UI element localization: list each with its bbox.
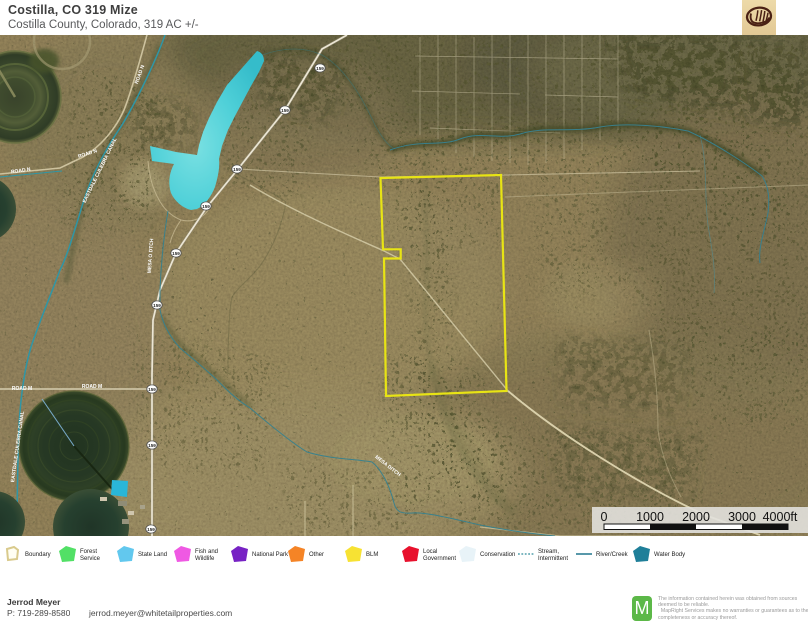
svg-text:River/Creek: River/Creek	[596, 552, 629, 558]
svg-text:4000ft: 4000ft	[763, 510, 798, 524]
svg-text:159: 159	[148, 443, 156, 448]
svg-text:3000: 3000	[728, 510, 756, 524]
svg-text:159: 159	[233, 167, 241, 172]
svg-text:Other: Other	[309, 552, 324, 558]
svg-text:159: 159	[316, 66, 324, 71]
svg-text:Service: Service	[80, 556, 101, 562]
svg-text:159: 159	[148, 387, 156, 392]
svg-text:National Park: National Park	[252, 552, 289, 558]
svg-text:0: 0	[601, 510, 608, 524]
svg-text:Forest: Forest	[80, 549, 97, 555]
svg-text:159: 159	[202, 204, 210, 209]
svg-text:159: 159	[147, 527, 155, 532]
svg-text:Boundary: Boundary	[25, 552, 51, 558]
svg-text:Fish and: Fish and	[195, 549, 218, 555]
svg-text:1000: 1000	[636, 510, 664, 524]
svg-text:Water Body: Water Body	[654, 552, 685, 558]
svg-text:Government: Government	[423, 556, 456, 562]
svg-text:159: 159	[153, 303, 161, 308]
svg-text:Wildlife: Wildlife	[195, 556, 215, 562]
svg-text:ROAD M: ROAD M	[12, 386, 32, 392]
svg-text:2000: 2000	[682, 510, 710, 524]
svg-text:Stream,: Stream,	[538, 549, 559, 555]
svg-text:Intermittent: Intermittent	[538, 556, 568, 562]
svg-text:ROAD M: ROAD M	[82, 384, 102, 390]
svg-text:State Land: State Land	[138, 552, 167, 558]
svg-text:159: 159	[172, 251, 180, 256]
svg-text:Local: Local	[423, 549, 437, 555]
svg-text:Conservation: Conservation	[480, 552, 515, 558]
svg-text:BLM: BLM	[366, 552, 378, 558]
svg-text:159: 159	[281, 108, 289, 113]
